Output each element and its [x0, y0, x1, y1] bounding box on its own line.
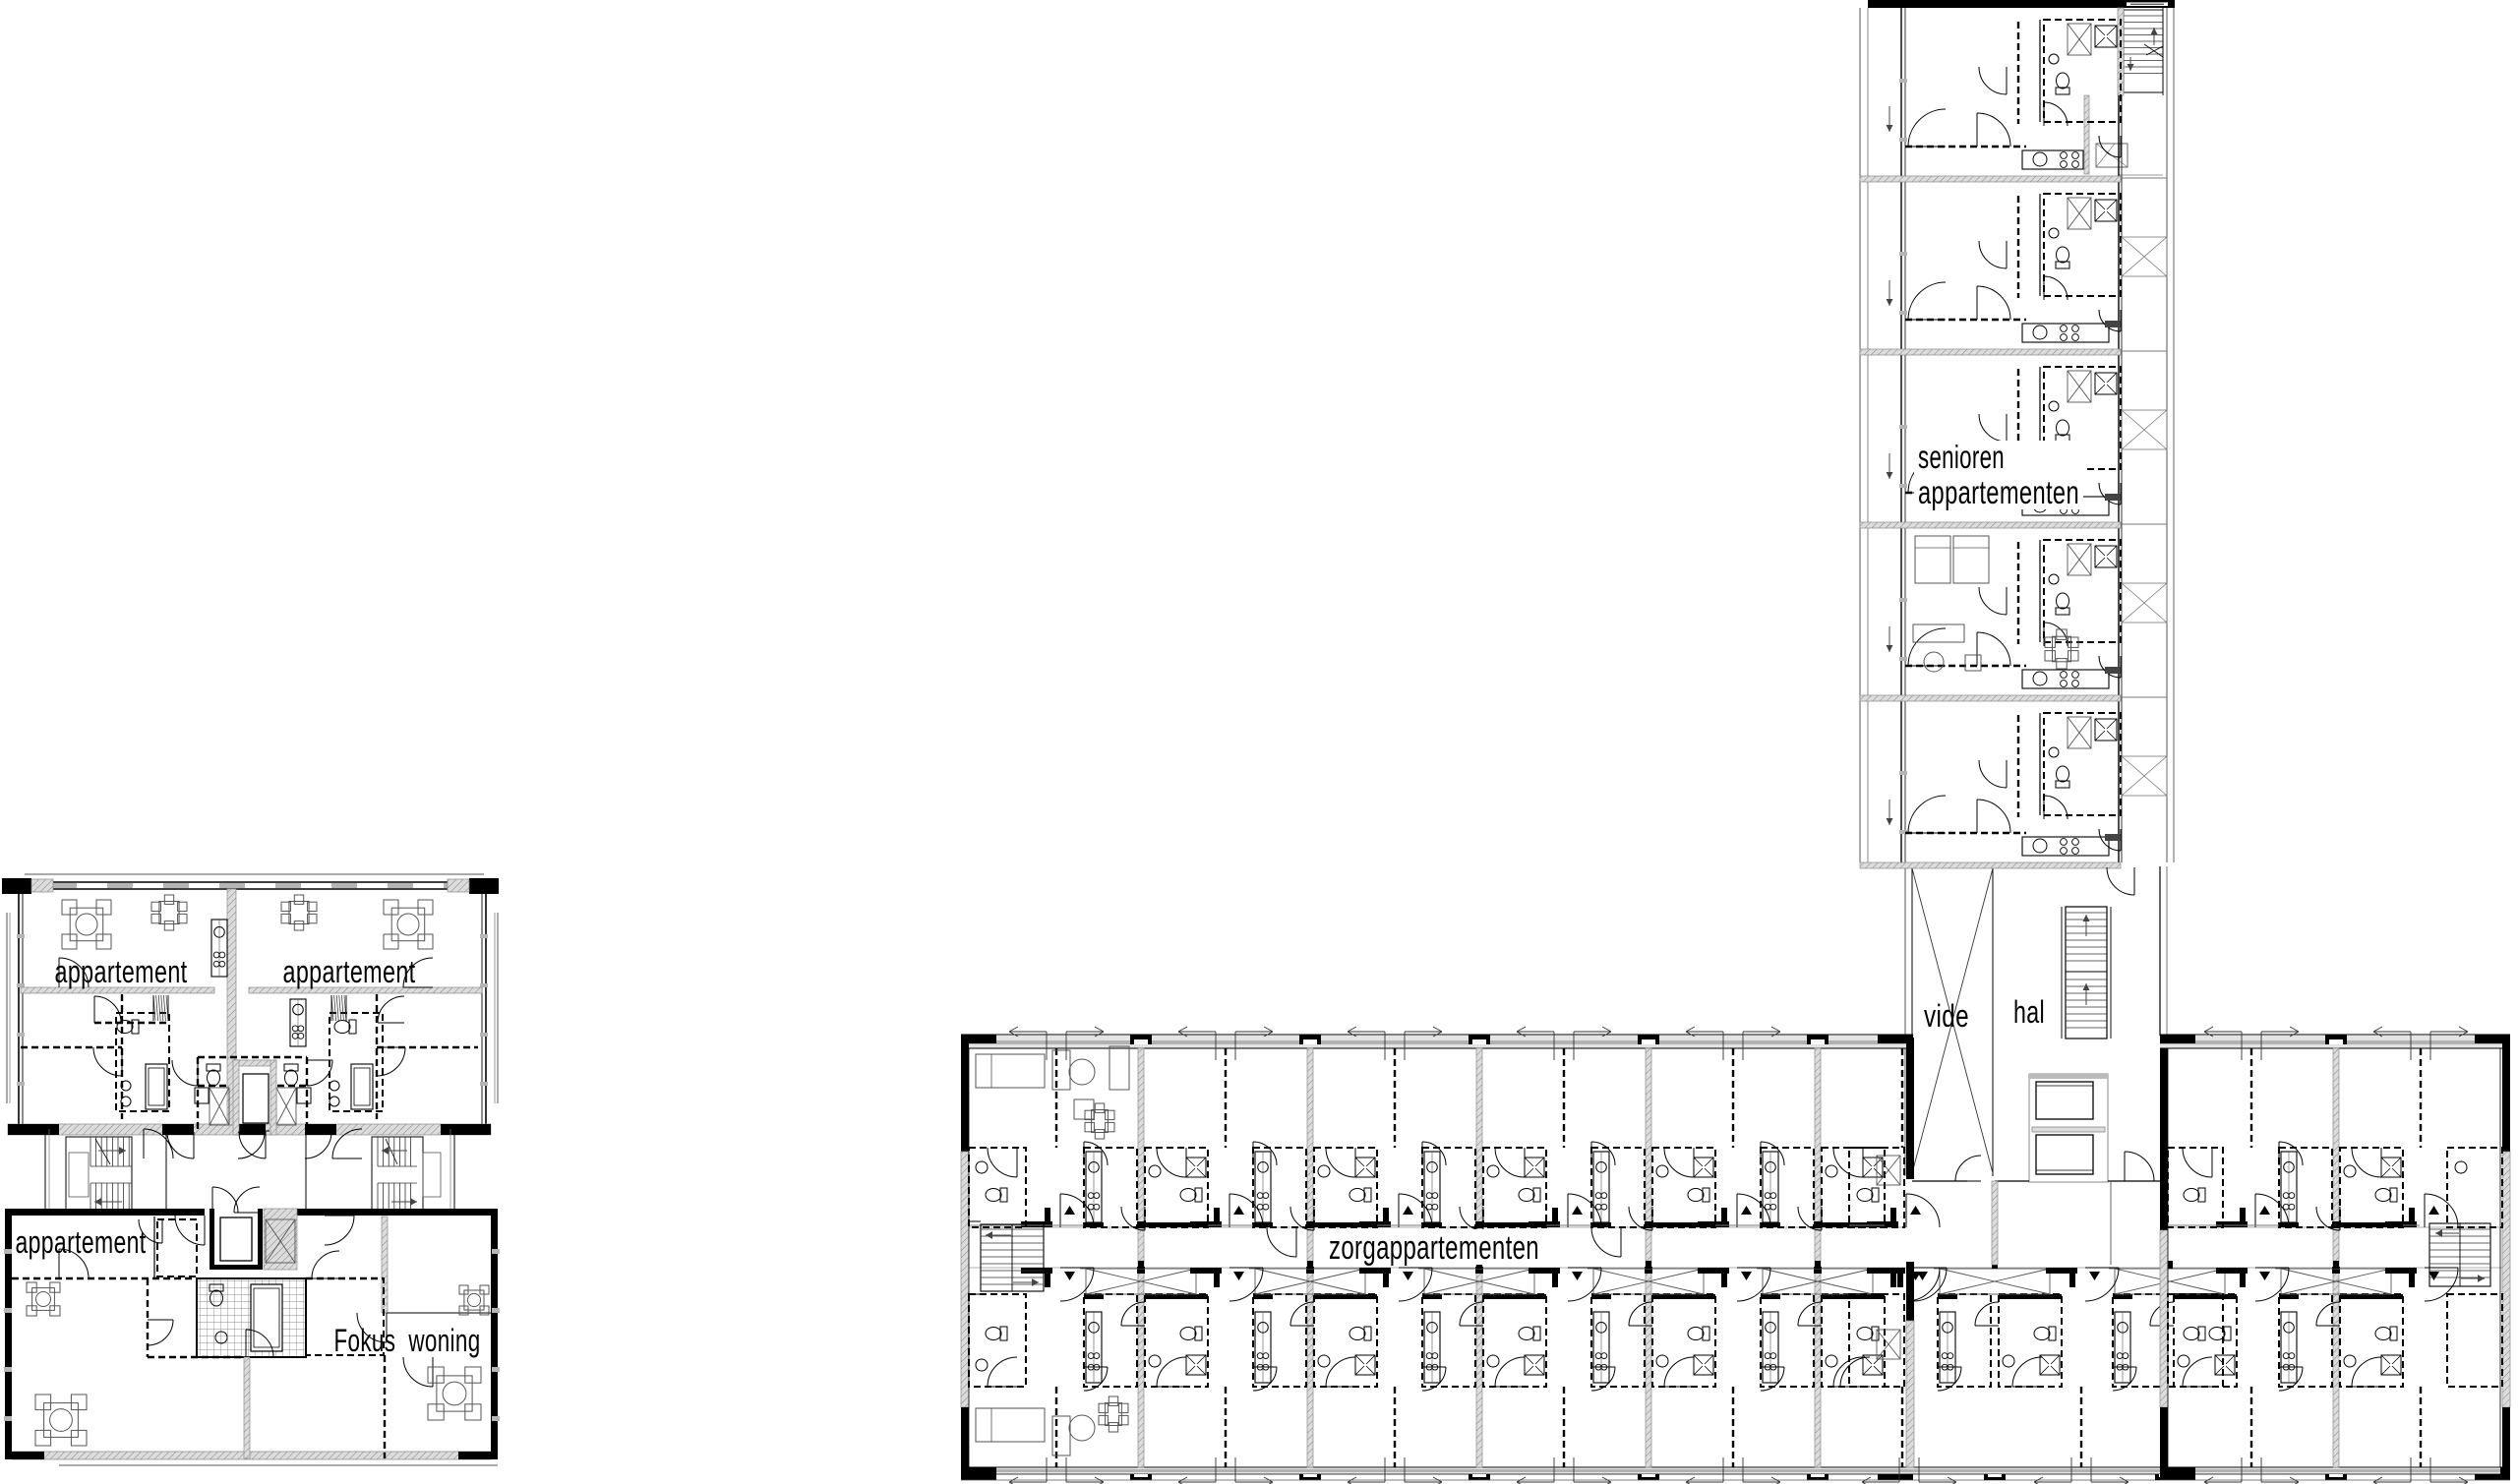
svg-text:hal: hal — [2013, 994, 2045, 1030]
svg-text:Fokus woning: Fokus woning — [334, 1323, 481, 1358]
svg-text:appartement: appartement — [283, 954, 416, 989]
svg-text:appartementen: appartementen — [1918, 474, 2079, 510]
svg-text:zorgappartementen: zorgappartementen — [1329, 1229, 1539, 1267]
svg-text:vide: vide — [1924, 998, 1969, 1034]
svg-text:appartement: appartement — [16, 1224, 147, 1260]
svg-text:senioren: senioren — [1918, 439, 2005, 475]
svg-text:appartement: appartement — [55, 954, 188, 989]
